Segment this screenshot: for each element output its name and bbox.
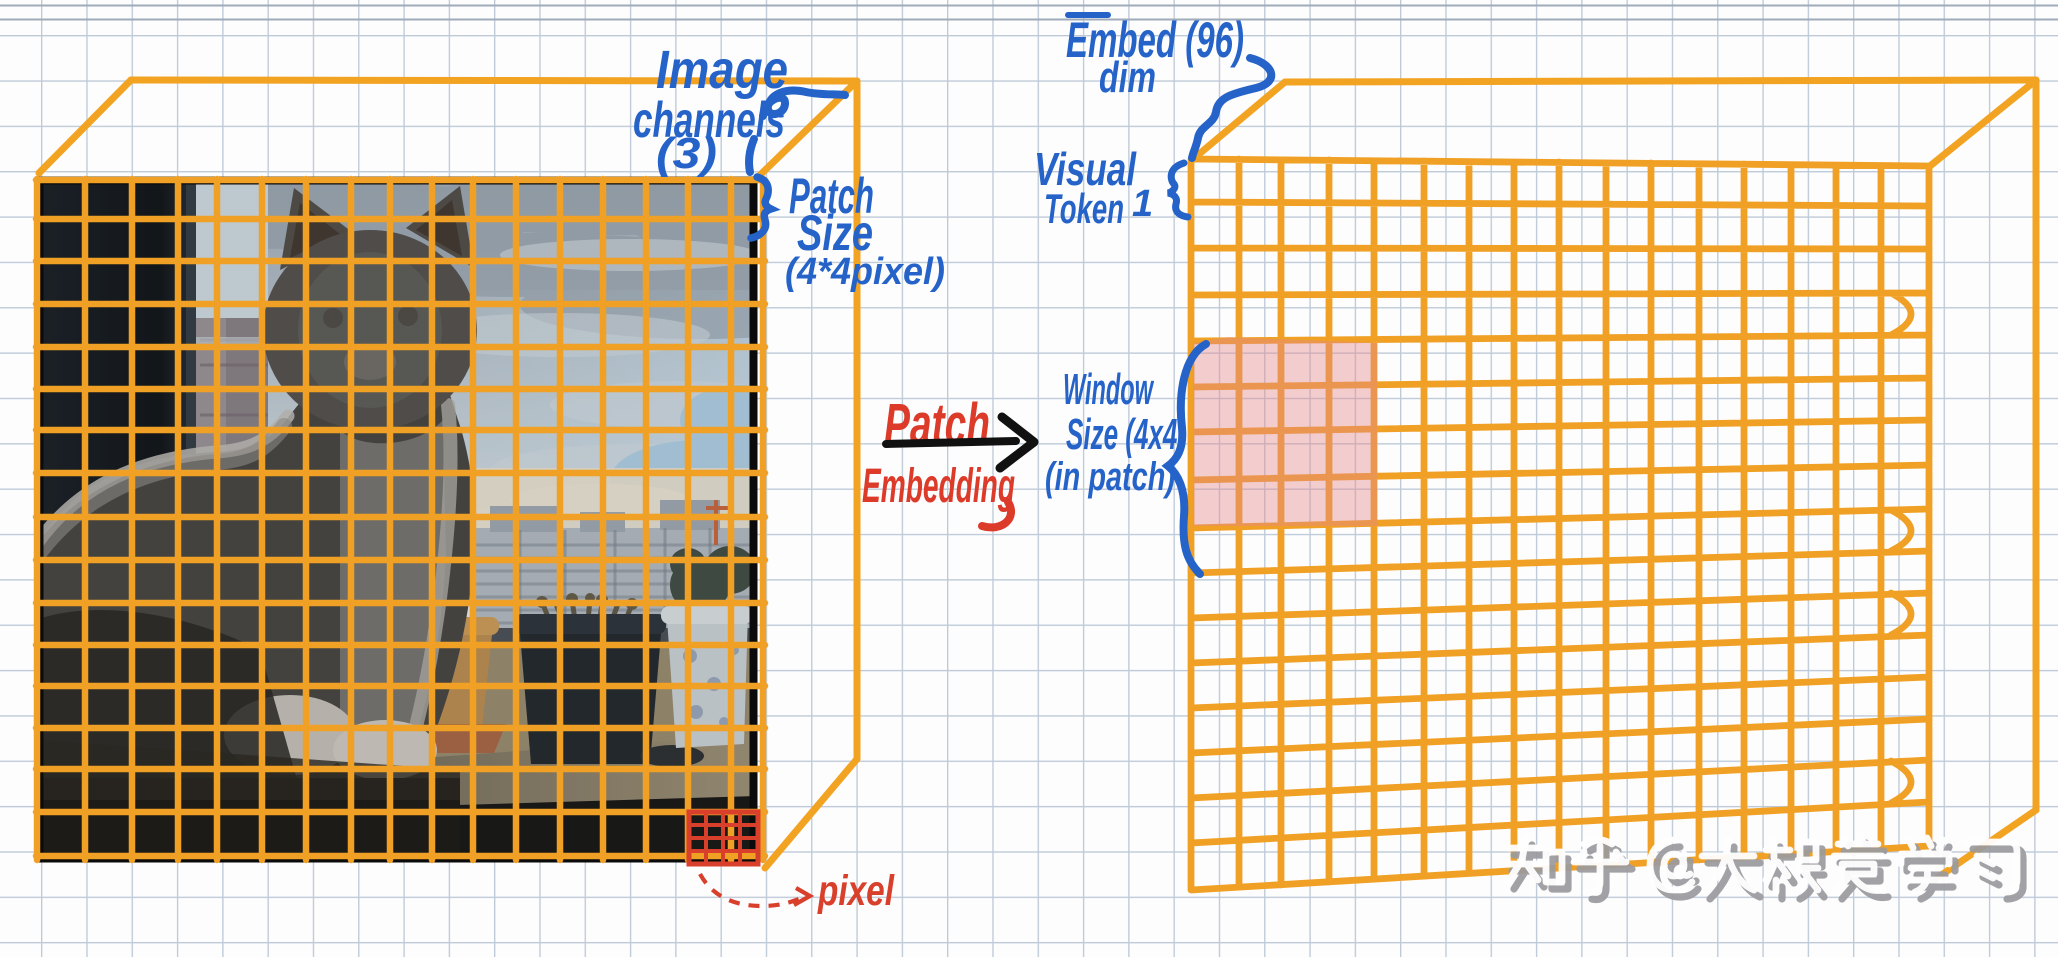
svg-text:Token: Token bbox=[1044, 185, 1124, 232]
svg-text:(4*4pixel): (4*4pixel) bbox=[785, 251, 945, 293]
svg-text:pixel: pixel bbox=[817, 867, 895, 915]
svg-text:Window: Window bbox=[1063, 365, 1154, 414]
svg-text:Size (4x4): Size (4x4) bbox=[1066, 410, 1186, 459]
svg-text:dim: dim bbox=[1099, 53, 1156, 102]
svg-text:1: 1 bbox=[1132, 183, 1153, 225]
svg-text:Image: Image bbox=[656, 40, 788, 100]
svg-text:(3): (3) bbox=[656, 129, 717, 178]
svg-text:Embedding: Embedding bbox=[862, 460, 1015, 513]
svg-text:(in patch): (in patch) bbox=[1045, 455, 1175, 499]
